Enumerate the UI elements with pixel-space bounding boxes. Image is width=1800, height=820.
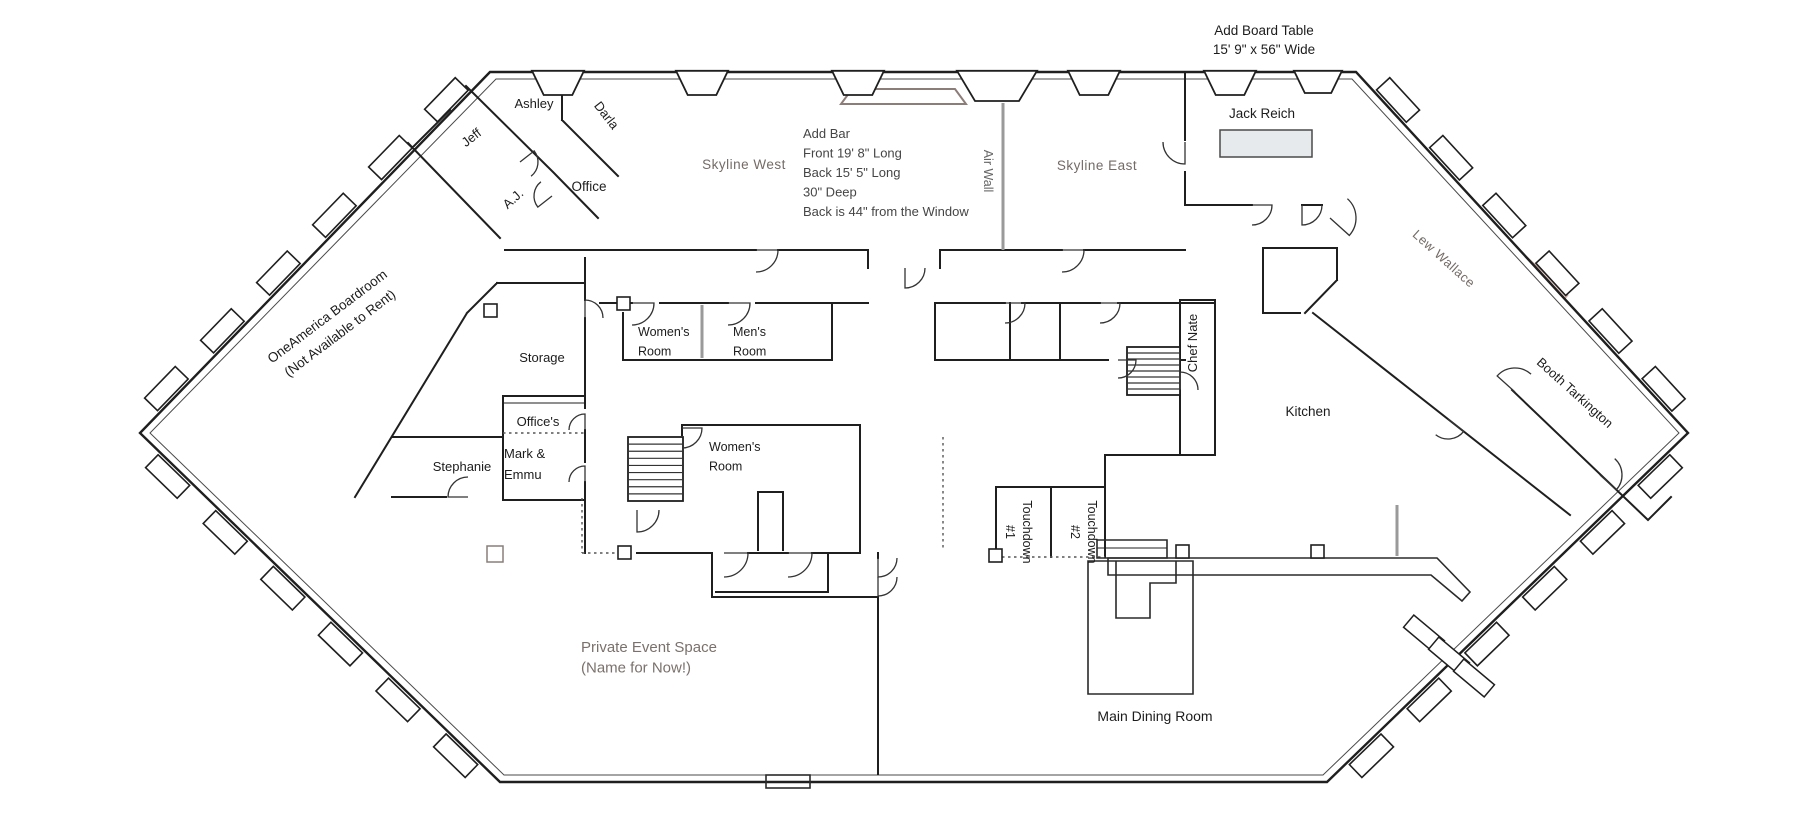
label-skyline-east: Skyline East — [1057, 158, 1137, 173]
column — [1176, 545, 1189, 558]
building-shell — [140, 72, 1688, 782]
label-offices: Office's — [517, 414, 560, 429]
column — [484, 304, 497, 317]
svg-text:Jack Reich: Jack Reich — [1229, 106, 1295, 121]
label-storage: Storage — [519, 350, 565, 365]
outer-wall — [140, 72, 1688, 782]
svg-text:Office: Office — [571, 179, 606, 194]
floor-plan: Add Board Table15' 9" x 56" WideAdd BarF… — [0, 0, 1800, 820]
floor-plan-page: Add Board Table15' 9" x 56" WideAdd BarF… — [0, 0, 1800, 820]
svg-text:Kitchen: Kitchen — [1285, 404, 1330, 419]
svg-text:Main Dining Room: Main Dining Room — [1097, 708, 1212, 724]
label-board-table: Add Board Table15' 9" x 56" Wide — [1213, 23, 1315, 57]
column — [989, 549, 1002, 562]
column — [618, 546, 631, 559]
label-kitchen: Kitchen — [1285, 404, 1330, 419]
svg-text:Skyline East: Skyline East — [1057, 158, 1137, 173]
board-table — [1220, 130, 1312, 157]
svg-text:Add Board Table15' 9" x 56" Wi: Add Board Table15' 9" x 56" Wide — [1213, 23, 1315, 57]
label-air-wall: Air Wall — [981, 150, 995, 193]
stair-step — [1454, 659, 1495, 697]
svg-text:Storage: Storage — [519, 350, 565, 365]
svg-text:Skyline West: Skyline West — [702, 157, 786, 172]
column — [1311, 545, 1324, 558]
label-skyline-west: Skyline West — [702, 157, 786, 172]
stairs-west — [628, 437, 683, 501]
column — [617, 297, 630, 310]
label-stephanie: Stephanie — [433, 459, 492, 474]
svg-text:Ashley: Ashley — [514, 96, 554, 111]
svg-text:Chef Nate: Chef Nate — [1185, 314, 1200, 373]
svg-text:Office's: Office's — [517, 414, 560, 429]
label-ashley: Ashley — [514, 96, 554, 111]
stairs-central — [1127, 347, 1180, 395]
label-main-dining: Main Dining Room — [1097, 708, 1212, 724]
svg-text:Stephanie: Stephanie — [433, 459, 492, 474]
svg-text:Air Wall: Air Wall — [981, 150, 995, 193]
label-jack-reich: Jack Reich — [1229, 106, 1295, 121]
label-chef-nate: Chef Nate — [1185, 314, 1200, 373]
label-office: Office — [571, 179, 606, 194]
